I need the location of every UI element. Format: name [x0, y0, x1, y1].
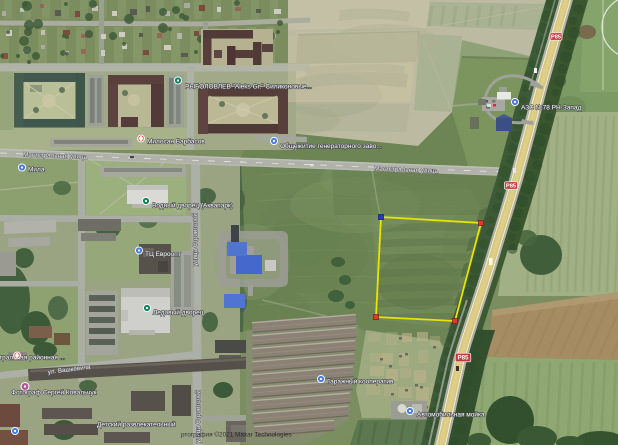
- svg-text:ентральная районная ...: ентральная районная ...: [0, 354, 65, 362]
- svg-text:Ледовый дворец: Ледовый дворец: [153, 309, 204, 317]
- svg-text:Водный дворец (Аквапарк): Водный дворец (Аквапарк): [152, 202, 233, 210]
- svg-text:Милосан Барбасов: Милосан Барбасов: [147, 138, 205, 146]
- svg-text:АЗС №78 РН-Запад: АЗС №78 РН-Запад: [521, 105, 581, 112]
- svg-text:улица Строителей: улица Строителей: [192, 213, 199, 266]
- svg-text:РЫБОЛОВЛЕВ "Aleks Gr." Силикон: РЫБОЛОВЛЕВ "Aleks Gr." Силиконовые...: [185, 84, 312, 91]
- svg-text:Автомобильная мойка: Автомобильная мойка: [417, 411, 485, 419]
- svg-text:Р85: Р85: [506, 184, 517, 190]
- svg-text:Гаражный кооператив: Гаражный кооператив: [327, 378, 394, 386]
- svg-text:Р85: Р85: [551, 35, 561, 41]
- svg-text:ртография ©2021 Maxar Technolo: ртография ©2021 Maxar Technologies: [181, 431, 292, 439]
- svg-text:Фотограф Сергей Ковальчук: Фотограф Сергей Ковальчук: [11, 389, 97, 397]
- svg-text:Р85: Р85: [457, 355, 469, 362]
- svg-text:ТЦ Евроопт: ТЦ Евроопт: [145, 251, 181, 258]
- svg-text:Общежитие генераторного заво..: Общежитие генераторного заво...: [280, 142, 382, 150]
- svg-text:Мила: Мила: [28, 167, 45, 174]
- svg-text:Детский развлекательный: Детский развлекательный: [97, 421, 176, 429]
